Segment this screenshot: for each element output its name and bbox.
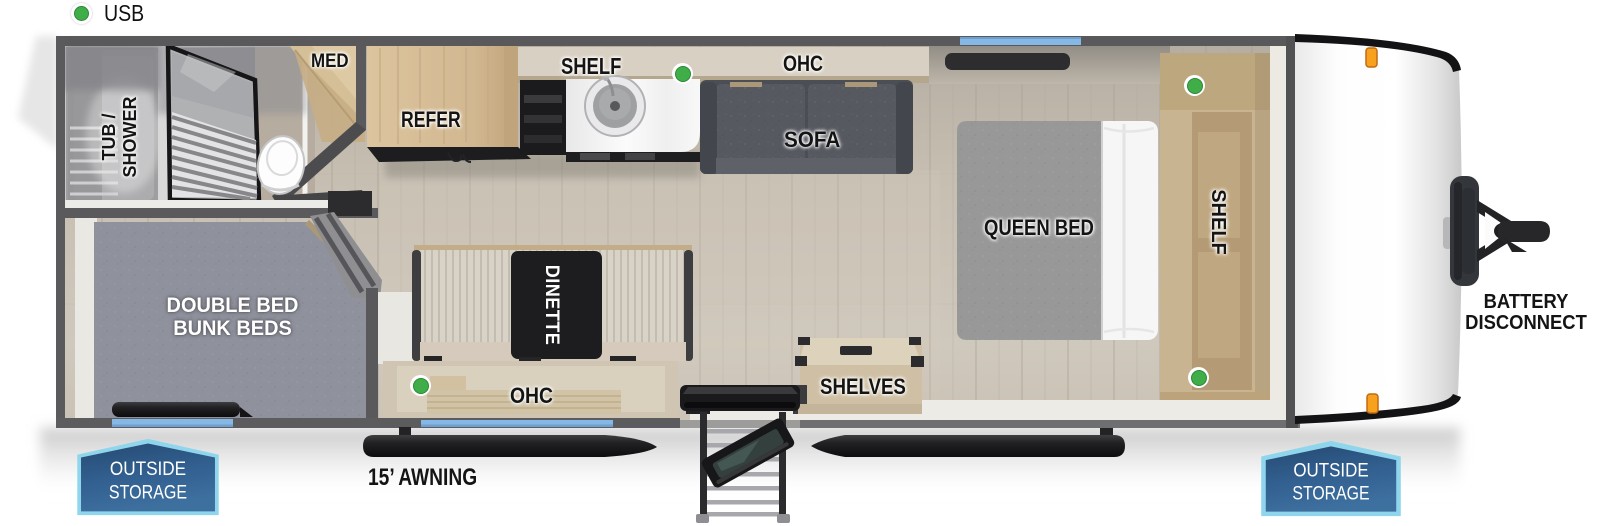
- svg-text:STORAGE: STORAGE: [109, 481, 187, 503]
- svg-text:OUTSIDE: OUTSIDE: [1293, 461, 1368, 482]
- svg-text:STORAGE: STORAGE: [1292, 484, 1369, 505]
- svg-text:OUTSIDE: OUTSIDE: [110, 458, 186, 480]
